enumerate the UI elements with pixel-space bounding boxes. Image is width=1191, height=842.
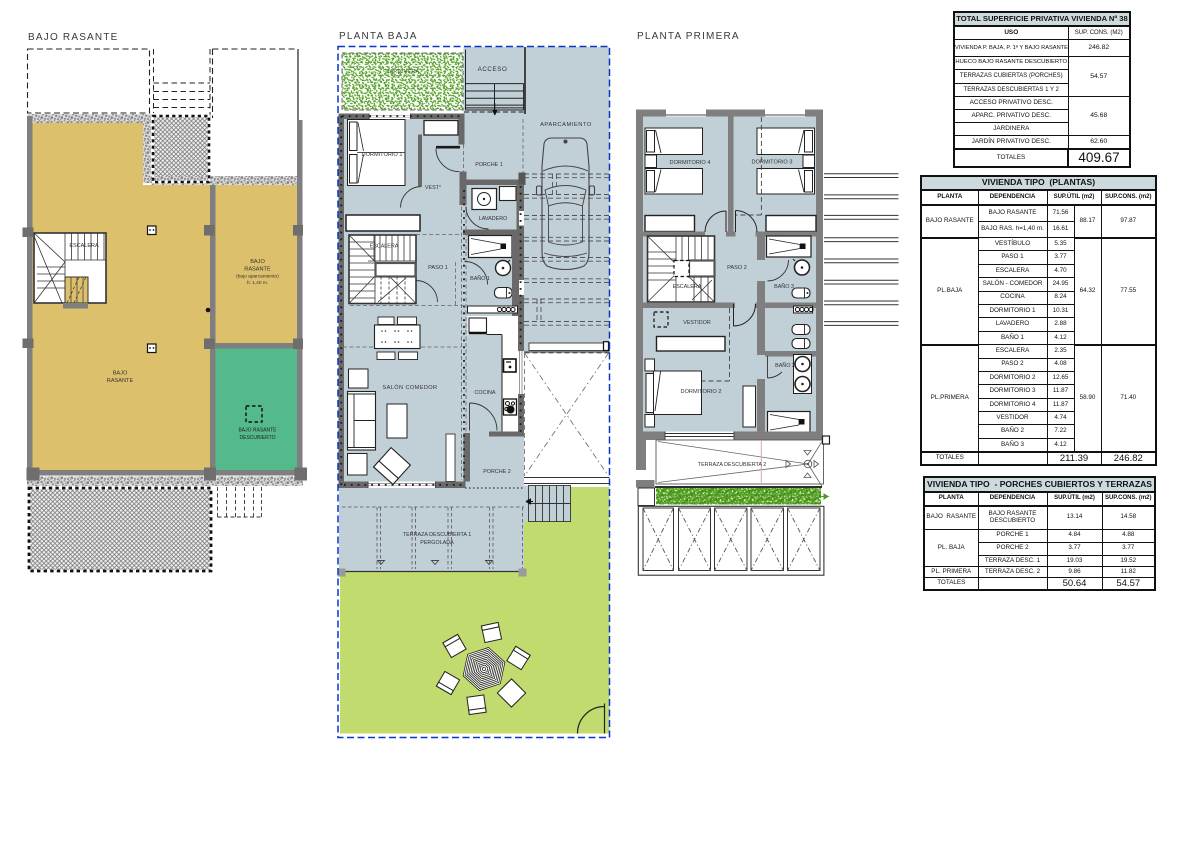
svg-text:(bajo aparcamiento): (bajo aparcamiento) bbox=[236, 274, 279, 280]
svg-text:PLANTA BAJA: PLANTA BAJA bbox=[339, 31, 418, 42]
svg-text:PASO 1: PASO 1 bbox=[428, 265, 448, 271]
svg-text:COCINA: COCINA bbox=[475, 390, 496, 396]
svg-text:VEST°: VEST° bbox=[425, 185, 441, 191]
svg-text:BAÑO 2: BAÑO 2 bbox=[775, 362, 795, 369]
svg-text:DORMITORIO 4: DORMITORIO 4 bbox=[670, 160, 711, 166]
svg-text:SALÓN COMEDOR: SALÓN COMEDOR bbox=[383, 384, 438, 391]
svg-text:h: 1,40 m.: h: 1,40 m. bbox=[247, 280, 268, 286]
svg-text:TERRAZA DESCUBIERTA 2: TERRAZA DESCUBIERTA 2 bbox=[698, 462, 766, 468]
svg-text:BAÑO 1: BAÑO 1 bbox=[470, 275, 490, 282]
svg-text:ACCESO: ACCESO bbox=[478, 66, 508, 73]
svg-text:JARDINERA: JARDINERA bbox=[387, 69, 420, 75]
svg-text:PASO 2: PASO 2 bbox=[727, 265, 747, 271]
svg-text:ESCALERA: ESCALERA bbox=[673, 284, 702, 290]
svg-text:TERRAZA DESCUBIERTA 1: TERRAZA DESCUBIERTA 1 bbox=[403, 532, 471, 538]
svg-text:PORCHE 1: PORCHE 1 bbox=[475, 162, 503, 168]
svg-text:PORCHE 2: PORCHE 2 bbox=[483, 469, 511, 475]
svg-text:ESCALERA: ESCALERA bbox=[69, 243, 99, 249]
svg-text:BAJO RASANTE: BAJO RASANTE bbox=[28, 32, 119, 43]
svg-text:LAVADERO: LAVADERO bbox=[479, 216, 508, 222]
svg-text:VESTIDOR: VESTIDOR bbox=[683, 320, 711, 326]
svg-text:RASANTE: RASANTE bbox=[107, 378, 134, 384]
svg-text:DORMITORIO 3: DORMITORIO 3 bbox=[752, 160, 793, 166]
svg-text:PERGOLADA: PERGOLADA bbox=[420, 540, 454, 546]
svg-text:ESCALERA: ESCALERA bbox=[370, 244, 399, 250]
svg-text:APARCAMIENTO: APARCAMIENTO bbox=[540, 122, 592, 128]
svg-text:RASANTE: RASANTE bbox=[244, 267, 271, 273]
svg-text:PLANTA PRIMERA: PLANTA PRIMERA bbox=[637, 31, 740, 42]
svg-text:BAÑO 3: BAÑO 3 bbox=[774, 283, 794, 290]
svg-text:BAJO: BAJO bbox=[250, 259, 265, 265]
svg-text:DESCUBIERTO: DESCUBIERTO bbox=[240, 435, 276, 441]
svg-text:DORMITORIO 2: DORMITORIO 2 bbox=[681, 389, 722, 395]
svg-text:DORMITORIO 1: DORMITORIO 1 bbox=[362, 152, 403, 158]
svg-text:BAJO RASANTE: BAJO RASANTE bbox=[238, 428, 277, 434]
svg-text:BAJO: BAJO bbox=[113, 371, 128, 377]
